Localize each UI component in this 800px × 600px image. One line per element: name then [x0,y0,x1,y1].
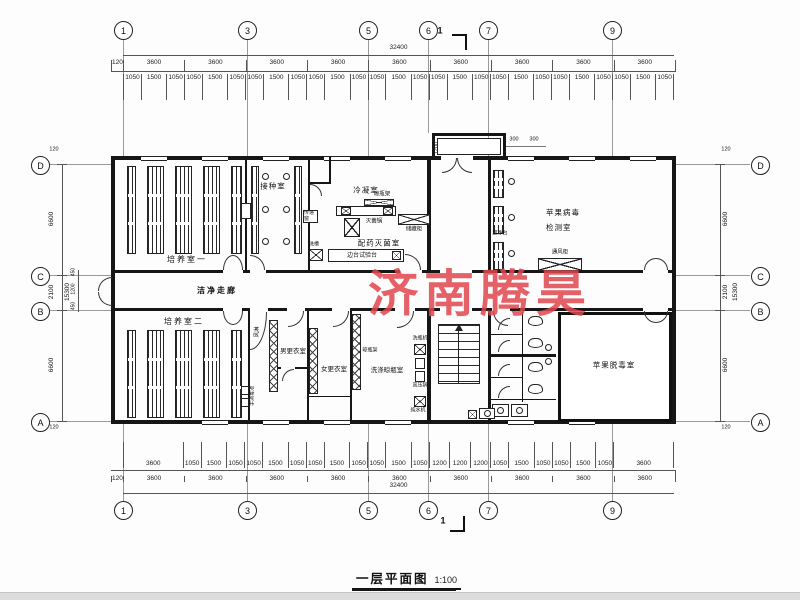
dimension-value: 300 [529,137,538,143]
dimension-value: 1500 [263,74,288,100]
grid-line [676,310,750,311]
drawing-title-block: 一层平面图 1:100 [352,568,461,590]
culture-rack [147,166,164,254]
stall-door-arc [498,340,510,352]
pass-window [241,203,251,219]
dimension-value: 1200 [470,442,491,468]
inoculation-bench [294,166,302,254]
autoclave-unit [415,371,425,382]
dimension-value: 2100 [49,285,56,299]
storage-cabinet [398,214,430,225]
wall-interior [488,310,491,420]
dimension-value: 3600 [368,60,429,71]
dimension-value: 1500 [324,442,349,468]
wall-corridor [113,270,223,273]
drawing-title: 一层平面图 [356,568,429,587]
wall-corridor [668,270,676,273]
dimension-value: 1050 [123,74,141,100]
dimension-value: 1050 [490,74,508,100]
dimension-value: 1050 [533,74,551,100]
dimension-value: 3600 [246,60,307,71]
window [263,420,289,425]
axis-bubble-left-C: C [31,267,50,286]
equipment-label-cabinet: 储藏柜 [406,227,423,233]
room-label-inoculation: 接种室 [260,182,286,190]
dim-total-bottom: 32400 [123,482,674,494]
dimension-value: 3600 [614,60,675,71]
dimension-value: 450 [72,268,77,276]
grid-line [676,275,750,276]
axis-bubble-top-3: 3 [238,21,257,40]
dimension-value: 1050 [594,74,612,100]
window [324,420,350,425]
axis-label: A [37,418,43,428]
inoculation-bench [251,166,259,254]
dimension-value: 120 [111,476,123,483]
axis-bubble-bottom-3: 3 [238,501,257,520]
water-machine-unit [414,396,426,407]
wall-exterior [672,156,676,424]
axis-label: D [37,161,44,171]
equipment-label-shelf: 晾瓶架 [374,192,391,198]
grid-line [676,421,750,422]
dimension-value: 1050 [226,442,244,468]
stair-center-line [458,330,459,384]
axis-label: 9 [610,506,615,516]
axis-label: B [757,307,763,317]
toilet-wc [528,338,543,348]
axis-label: B [37,307,43,317]
dimension-value: 120 [49,425,58,431]
dim-tick [57,421,67,422]
room-label-line: 苹果病毒 [546,205,580,220]
axis-label: 3 [245,26,250,36]
entrance-door-leaf [457,158,472,173]
culture-rack [147,330,164,418]
window [202,156,228,161]
door-arc [333,311,349,327]
dimension-value: 450 [72,302,77,310]
dim-detail-bottom: 3600105015001050105015001050105015001050… [123,442,674,468]
floor-plan-canvas: 1 3 5 6 7 9 1 3 5 6 7 9 D C B A D C B A … [0,0,800,600]
stall-door-arc [498,364,510,376]
dimension-value: 1500 [570,442,595,468]
window [385,420,411,425]
axis-bubble-right-C: C [751,267,770,286]
section-marker-number: 1 [437,27,442,36]
equipment-label-shelf2: 晾瓶架 [362,349,377,354]
dim-line [78,270,79,312]
dimension-value: 1050 [184,74,202,100]
shelf-rack [364,199,394,206]
axis-label: 7 [486,506,491,516]
equipment-label-sterilizer: 灭菌锅 [366,219,383,225]
axis-label: A [757,418,763,428]
room-label-virus-test: 苹果病毒 检测室 [546,205,580,235]
stool [262,238,269,245]
axis-label: 6 [426,26,431,36]
equipment-label-water-machine: 纯水机 [410,409,425,414]
culture-rack [127,166,136,254]
dimension-value: 1050 [472,74,490,100]
dim-tick [57,275,67,276]
wall-corridor [113,308,223,311]
pass-window-box: 传递窗 [303,210,318,223]
dimension-value: 1050 [367,442,385,468]
culture-rack [175,330,192,418]
axis-bubble-left-D: D [31,156,50,175]
door-arc [233,255,243,270]
bottle-washer-unit [414,344,426,355]
equipment-label-bottle-washer: 洗瓶机 [412,337,427,342]
toilet-divider [490,334,522,335]
stool [508,214,515,221]
watermark-text: 济南腾昊 [368,254,592,326]
exterior-door-leaf [98,277,112,291]
staircase [438,324,480,384]
dimension-value: 120 [111,60,123,71]
window [141,156,167,161]
door-arc [656,258,668,270]
bottom-edge-strip [0,592,800,600]
dimension-value: 3600 [123,60,184,71]
hand-wash-basin [241,386,249,395]
toilet-fixture [545,358,552,365]
grid-line [676,164,750,165]
locker-column [269,320,278,392]
wall-porch [432,133,506,136]
dimension-value: 3600 [552,60,613,71]
axis-bubble-right-B: B [751,302,770,321]
autoclave-unit [415,358,425,369]
equipment-label-hand-wash: 手消毒池 [251,386,256,406]
stool [508,178,515,185]
dim-line [506,146,546,147]
dimension-value: 1500 [630,74,655,100]
door-arc [223,311,233,325]
dimension-value: 1050 [551,74,569,100]
dimension-value: 6600 [49,212,56,226]
equipment-label-sink: 洗槽 [309,243,319,248]
axis-label: C [37,272,44,282]
window [508,420,534,425]
room-label-prep-steril: 配药灭菌室 [358,239,401,247]
dimension-value: 120 [721,425,730,431]
window [385,156,411,161]
stool [262,206,269,213]
dimension-value: 1200 [429,442,450,468]
exterior-door-leaf [98,292,112,306]
dimension-value: 6600 [723,212,730,226]
axis-bubble-bottom-7: 7 [479,501,498,520]
dimension-value: 1050 [288,74,306,100]
washer-drum [484,410,491,417]
dimension-value: 1050 [349,442,367,468]
dimension-value: 1050 [350,74,368,100]
bench-unit [383,207,393,215]
dimension-value: 1050 [429,74,447,100]
dim-tick [715,310,725,311]
dimension-value: 1200 [449,442,470,468]
wall-interior [427,310,431,420]
window [508,156,534,161]
axis-label: 5 [366,506,371,516]
dimension-value: 1050 [245,74,263,100]
dimension-value: 32400 [389,482,407,489]
door-arc [223,255,233,270]
dimension-value: 120 [49,147,58,153]
stool [283,206,290,213]
dimension-value: 6600 [723,358,730,372]
dimension-value: 1050 [244,442,262,468]
dimension-value: 1500 [202,74,227,100]
axis-bubble-top-6: 6 [419,21,438,40]
dimension-value: 1050 [534,442,552,468]
stall-door-arc [498,386,510,398]
stool [262,173,269,180]
axis-label: 7 [486,26,491,36]
culture-rack [127,330,136,418]
wall-corridor [305,308,332,311]
window [630,156,656,161]
dimension-value: 1050 [411,74,429,100]
room-label-corridor: 洁净走廊 [197,287,237,295]
stool [283,238,290,245]
wall-interior [329,156,331,183]
equipment-label-autoclave: 高压锅 [412,384,427,389]
axis-label: 3 [245,506,250,516]
window [202,420,228,425]
axis-bubble-left-A: A [31,413,50,432]
room-label-line: 检测室 [546,220,580,235]
axis-label: 1 [121,506,126,516]
sterilizer-pot [344,218,360,237]
dimension-value: 1500 [201,442,226,468]
room-label-detox: 苹果脱毒室 [593,361,636,369]
wash-sink [309,249,323,261]
toilet-divider [490,399,556,400]
axis-label: C [757,272,764,282]
dimension-value: 1500 [385,442,410,468]
wall-interior [295,367,307,369]
axis-bubble-bottom-1: 1 [114,501,133,520]
dimension-value: 1200 [72,283,77,294]
wall-porch [432,133,435,158]
dimension-value: 1050 [368,74,386,100]
clean-bench-rack [493,170,504,198]
dim-total-top: 32400 [123,44,674,56]
locker-column [309,328,318,394]
dimension-value: 1050 [552,442,570,468]
toilet-fixture [545,344,552,351]
entrance-door-leaf [442,158,457,173]
dimension-value: 3600 [430,60,491,71]
culture-rack [203,330,220,418]
axis-bubble-right-A: A [751,413,770,432]
wall-corridor [243,270,250,273]
axis-label: D [757,161,764,171]
toilet-wc [528,384,543,394]
dimension-value: 1050 [411,442,429,468]
window [324,156,350,161]
dim-tick [715,421,725,422]
axis-bubble-bottom-6: 6 [419,501,438,520]
window [263,156,289,161]
door-arc [288,311,304,327]
toilet-divider [488,354,556,357]
room-label-culture2: 培养室二 [164,318,204,326]
dimension-value: 1500 [447,74,472,100]
wall-corridor [268,308,287,311]
dimension-value: 1500 [508,442,533,468]
porch-inner-line [437,138,501,155]
dimension-value: 1500 [569,74,594,100]
dimension-value: 1050 [595,442,613,468]
section-marker-number: 1 [440,517,445,526]
dimension-value: 1500 [141,74,166,100]
axis-label: 1 [121,26,126,36]
basin-tap [497,407,504,414]
dimension-value: 120 [721,147,730,153]
dim-tick [715,275,725,276]
dimension-value: 6600 [49,358,56,372]
title-underline [352,589,456,591]
dimension-value: 1050 [612,74,630,100]
floor-drain [468,410,477,419]
dimension-value: 3600 [491,60,552,71]
axis-bubble-top-9: 9 [603,21,622,40]
dim-tick [715,164,725,165]
room-label-women-change: 女更衣室 [321,367,347,374]
axis-bubble-top-7: 7 [479,21,498,40]
dim-tick [57,310,67,311]
room-label-washing: 洗涤晾瓶室 [371,368,404,375]
toilet-wc [528,362,543,372]
dimension-value: 3600 [184,60,245,71]
dimension-value: 1050 [288,442,306,468]
toilet-divider [490,377,522,378]
axis-label: 6 [426,506,431,516]
door-arc [310,184,322,196]
door-arc [233,311,243,325]
dimension-value: 1500 [508,74,533,100]
culture-rack [175,166,192,254]
equipment-label-clean-bench: 超净台 [492,232,507,237]
dim-tick [57,164,67,165]
dimension-value: 1050 [227,74,245,100]
bench-unit [341,207,351,215]
door-arc [282,369,294,381]
axis-label: 5 [366,26,371,36]
dimension-value: 1050 [306,74,324,100]
axis-bubble-left-B: B [31,302,50,321]
dimension-value: 1050 [166,74,184,100]
dimension-value: 2100 [723,285,730,299]
dimension-value: 1050 [306,442,324,468]
dim-bays-top: 120360036003600360036003600360036003600 [111,60,676,72]
dimension-value: 15300 [733,283,740,301]
drawing-scale: 1:100 [435,575,458,585]
equipment-label: 传递窗 [304,210,314,222]
window [569,156,595,161]
dimension-value: 1050 [183,442,201,468]
wall-interior [488,156,491,270]
equipment-label-air-shower: 风淋 [255,326,261,337]
dimension-value: 3600 [123,442,183,468]
wall-corridor [668,308,676,311]
wall-interior [427,156,431,270]
dimension-value: 1050 [655,74,673,100]
wall-porch [503,133,506,158]
room-label-culture1: 培养室一 [167,256,207,264]
hand-wash-basin [241,398,249,407]
dimension-value: 1500 [324,74,349,100]
dimension-value: 1500 [385,74,410,100]
dim-detail-top: 1050150010501050150010501050150010501050… [123,74,674,100]
axis-bubble-bottom-9: 9 [603,501,622,520]
axis-label: 9 [610,26,615,36]
door-arc [644,258,656,270]
axis-bubble-bottom-5: 5 [359,501,378,520]
culture-rack [203,166,220,254]
axis-bubble-top-5: 5 [359,21,378,40]
room-label-men-change: 男更衣室 [280,349,306,356]
dimension-value: 3600 [613,442,673,468]
dimension-value: 1050 [490,442,508,468]
section-marker-bracket [450,516,465,532]
door-arc [250,255,265,270]
stool [283,173,290,180]
dimension-value: 32400 [389,44,407,51]
axis-bubble-top-1: 1 [114,21,133,40]
dimension-value: 3600 [307,60,368,71]
dimension-value: 300 [509,137,518,143]
dimension-value: 1500 [262,442,287,468]
section-marker-bracket [452,34,467,50]
basin-tap [516,407,523,414]
locker-column [352,314,361,390]
axis-bubble-right-D: D [751,156,770,175]
dim-bays-bottom: 120360036003600360036003600360036003600 [111,470,676,482]
wall-interior [309,396,351,397]
